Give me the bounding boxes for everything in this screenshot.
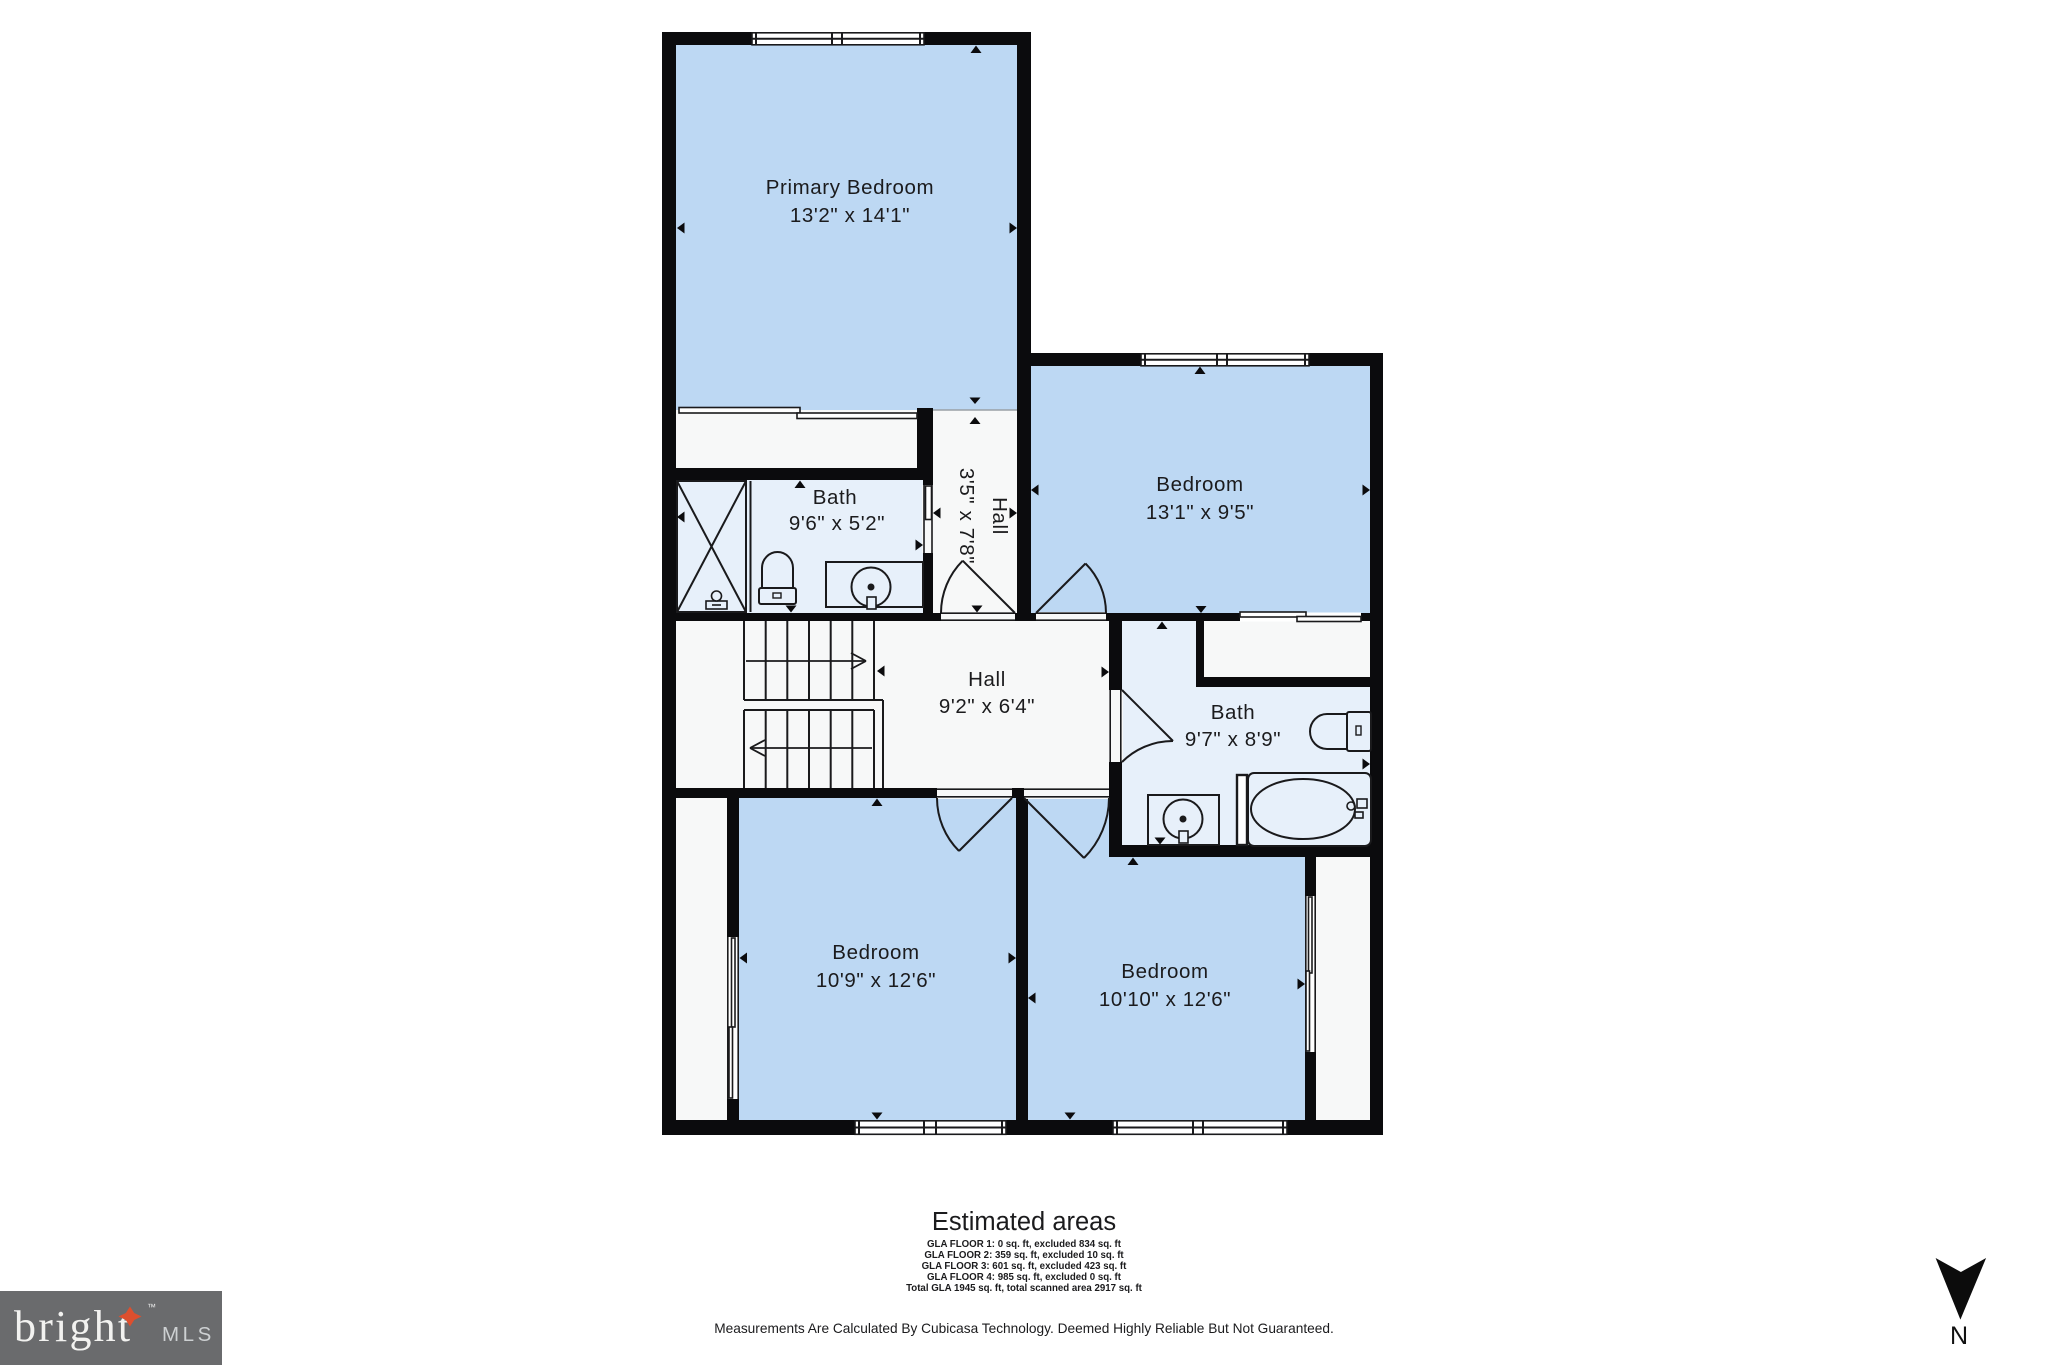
svg-text:10'10" x 12'6": 10'10" x 12'6" — [1099, 988, 1231, 1011]
svg-text:13'1" x 9'5": 13'1" x 9'5" — [1146, 501, 1254, 524]
svg-text:GLA FLOOR 2: 359 sq. ft, exclu: GLA FLOOR 2: 359 sq. ft, excluded 10 sq.… — [924, 1250, 1124, 1261]
svg-text:MLS: MLS — [162, 1323, 215, 1346]
svg-text:GLA FLOOR 1: 0 sq. ft, exclude: GLA FLOOR 1: 0 sq. ft, excluded 834 sq. … — [927, 1239, 1122, 1250]
svg-text:Hall: Hall — [988, 497, 1011, 535]
svg-text:9'6" x 5'2": 9'6" x 5'2" — [789, 512, 885, 535]
svg-text:9'7" x 8'9": 9'7" x 8'9" — [1185, 728, 1281, 751]
svg-text:bright: bright — [14, 1302, 132, 1351]
svg-text:Hall: Hall — [968, 668, 1006, 691]
svg-text:N: N — [1950, 1322, 1968, 1350]
svg-text:™: ™ — [147, 1302, 156, 1312]
svg-text:Estimated areas: Estimated areas — [932, 1208, 1116, 1236]
svg-text:GLA FLOOR 3: 601 sq. ft, exclu: GLA FLOOR 3: 601 sq. ft, excluded 423 sq… — [922, 1261, 1128, 1272]
svg-text:Bedroom: Bedroom — [832, 941, 919, 964]
svg-text:Measurements Are Calculated By: Measurements Are Calculated By Cubicasa … — [714, 1321, 1334, 1336]
svg-text:10'9" x 12'6": 10'9" x 12'6" — [816, 969, 936, 992]
svg-text:GLA FLOOR 4: 985 sq. ft, exclu: GLA FLOOR 4: 985 sq. ft, excluded 0 sq. … — [927, 1272, 1122, 1283]
svg-text:9'2" x 6'4": 9'2" x 6'4" — [939, 695, 1035, 718]
svg-text:13'2" x 14'1": 13'2" x 14'1" — [790, 204, 910, 227]
svg-text:Primary Bedroom: Primary Bedroom — [766, 176, 935, 199]
svg-text:Bedroom: Bedroom — [1156, 473, 1243, 496]
svg-text:Bedroom: Bedroom — [1121, 960, 1208, 983]
svg-text:Bath: Bath — [1211, 701, 1256, 724]
svg-text:Bath: Bath — [813, 486, 858, 509]
svg-text:Total GLA 1945 sq. ft, total s: Total GLA 1945 sq. ft, total scanned are… — [906, 1283, 1143, 1294]
svg-text:3'5" x 7'8": 3'5" x 7'8" — [955, 468, 978, 564]
